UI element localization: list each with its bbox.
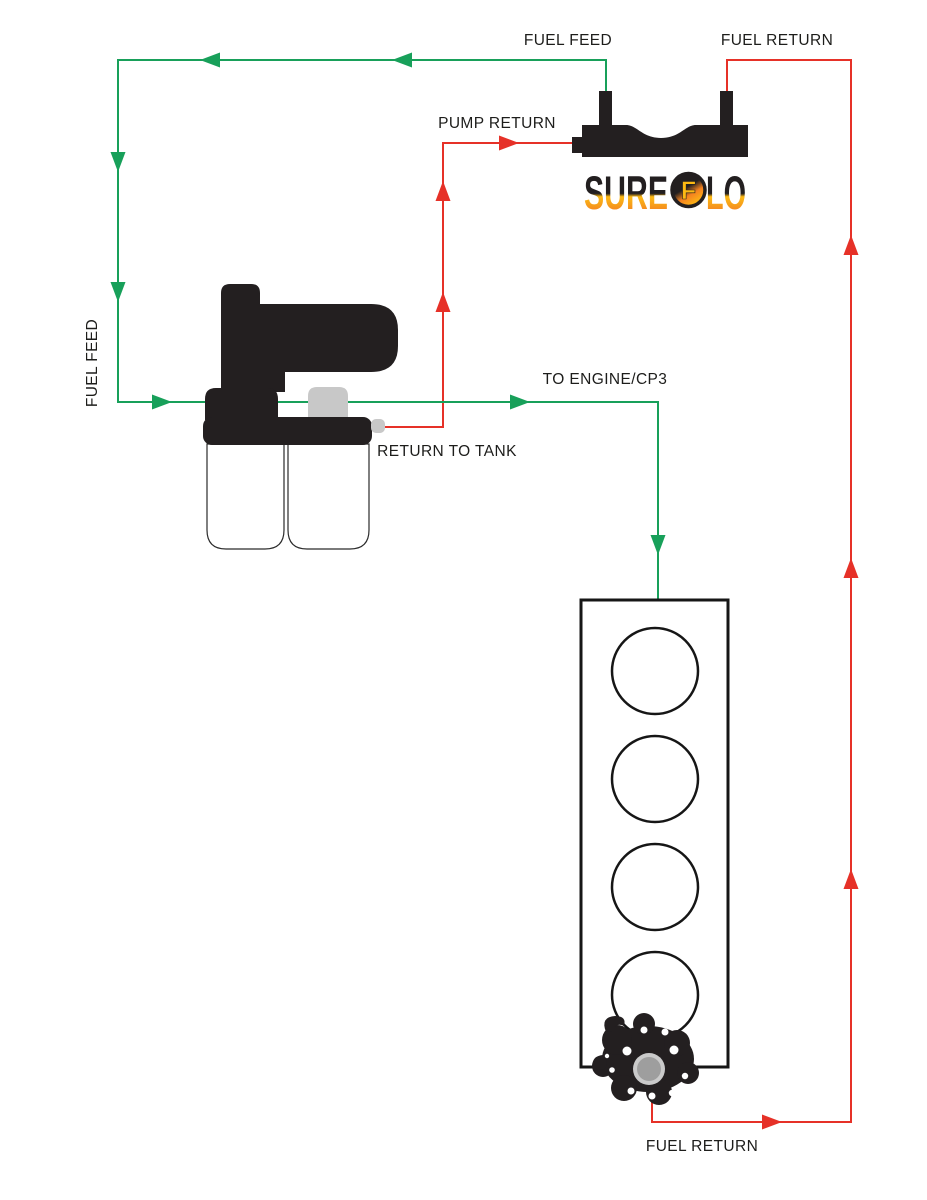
return-arrow-up-icon [436, 292, 451, 312]
bolt-hole [669, 1090, 675, 1096]
return-nipple [371, 419, 385, 433]
fuel-system-diagram: SURE F LO [0, 0, 927, 1200]
return-arrow-right-icon [762, 1115, 782, 1130]
outlet-fitting [308, 387, 348, 418]
feed-arrow-down-icon [651, 535, 666, 555]
sump-flange-body [582, 125, 748, 157]
bolt-hole [641, 1027, 648, 1034]
logo-text-sure: SURE [584, 166, 668, 219]
bolt-hole [670, 1046, 679, 1055]
bolt-hole [623, 1047, 632, 1056]
filter-canister-right [288, 444, 369, 549]
bolt-hole [605, 1054, 609, 1058]
bolt-hole [682, 1073, 688, 1079]
feed-arrow-down-icon [111, 282, 126, 302]
feed-arrow-right-icon [152, 395, 172, 410]
feed-arrow-left-icon [392, 53, 412, 68]
cp3-shaft-hub [637, 1057, 661, 1081]
feed-arrow-down-icon [111, 152, 126, 172]
pump-motor-body [258, 304, 398, 372]
return-arrow-up-icon [844, 869, 859, 889]
label-fuel-feed-top: FUEL FEED [524, 32, 612, 49]
logo-letter-f: F [681, 177, 696, 205]
fuel-tank-sump-module-icon: SURE F LO [572, 91, 748, 219]
bolt-hole [649, 1093, 656, 1100]
sureflo-logo: SURE F LO [584, 166, 746, 219]
inline-4-engine-block-icon [581, 600, 728, 1067]
return-arrow-up-icon [844, 558, 859, 578]
label-pump-return: PUMP RETURN [438, 115, 556, 132]
label-fuel-return-bottom: FUEL RETURN [646, 1138, 758, 1155]
feed-arrow-right-icon [510, 395, 530, 410]
return-port-stub [720, 91, 733, 127]
label-fuel-return-top: FUEL RETURN [721, 32, 833, 49]
cylinder-bore [612, 844, 698, 930]
filter-canister-left [207, 444, 284, 549]
logo-text-lo: LO [706, 166, 746, 219]
label-to-engine-cp3: TO ENGINE/CP3 [543, 371, 668, 388]
feed-arrow-left-icon [200, 53, 220, 68]
cylinder-bore [612, 736, 698, 822]
cp3-body [677, 1062, 699, 1084]
bolt-hole [609, 1067, 615, 1073]
lift-pump-dual-filter-icon [203, 284, 398, 549]
return-arrow-right-icon [499, 136, 519, 151]
return-arrow-up-icon [844, 235, 859, 255]
return-arrow-up-icon [436, 181, 451, 201]
cylinder-bore [612, 628, 698, 714]
label-fuel-feed-left: FUEL FEED [84, 319, 101, 407]
bolt-hole [662, 1029, 669, 1036]
cp3-body [593, 1056, 607, 1070]
pump-foot-bracket [205, 388, 278, 420]
cylinder-bore [612, 952, 698, 1038]
bolt-hole [628, 1088, 635, 1095]
cp3-body [611, 1075, 637, 1101]
filter-head-base [203, 417, 372, 445]
feed-port-stub [599, 91, 612, 127]
label-return-to-tank: RETURN TO TANK [377, 443, 517, 460]
